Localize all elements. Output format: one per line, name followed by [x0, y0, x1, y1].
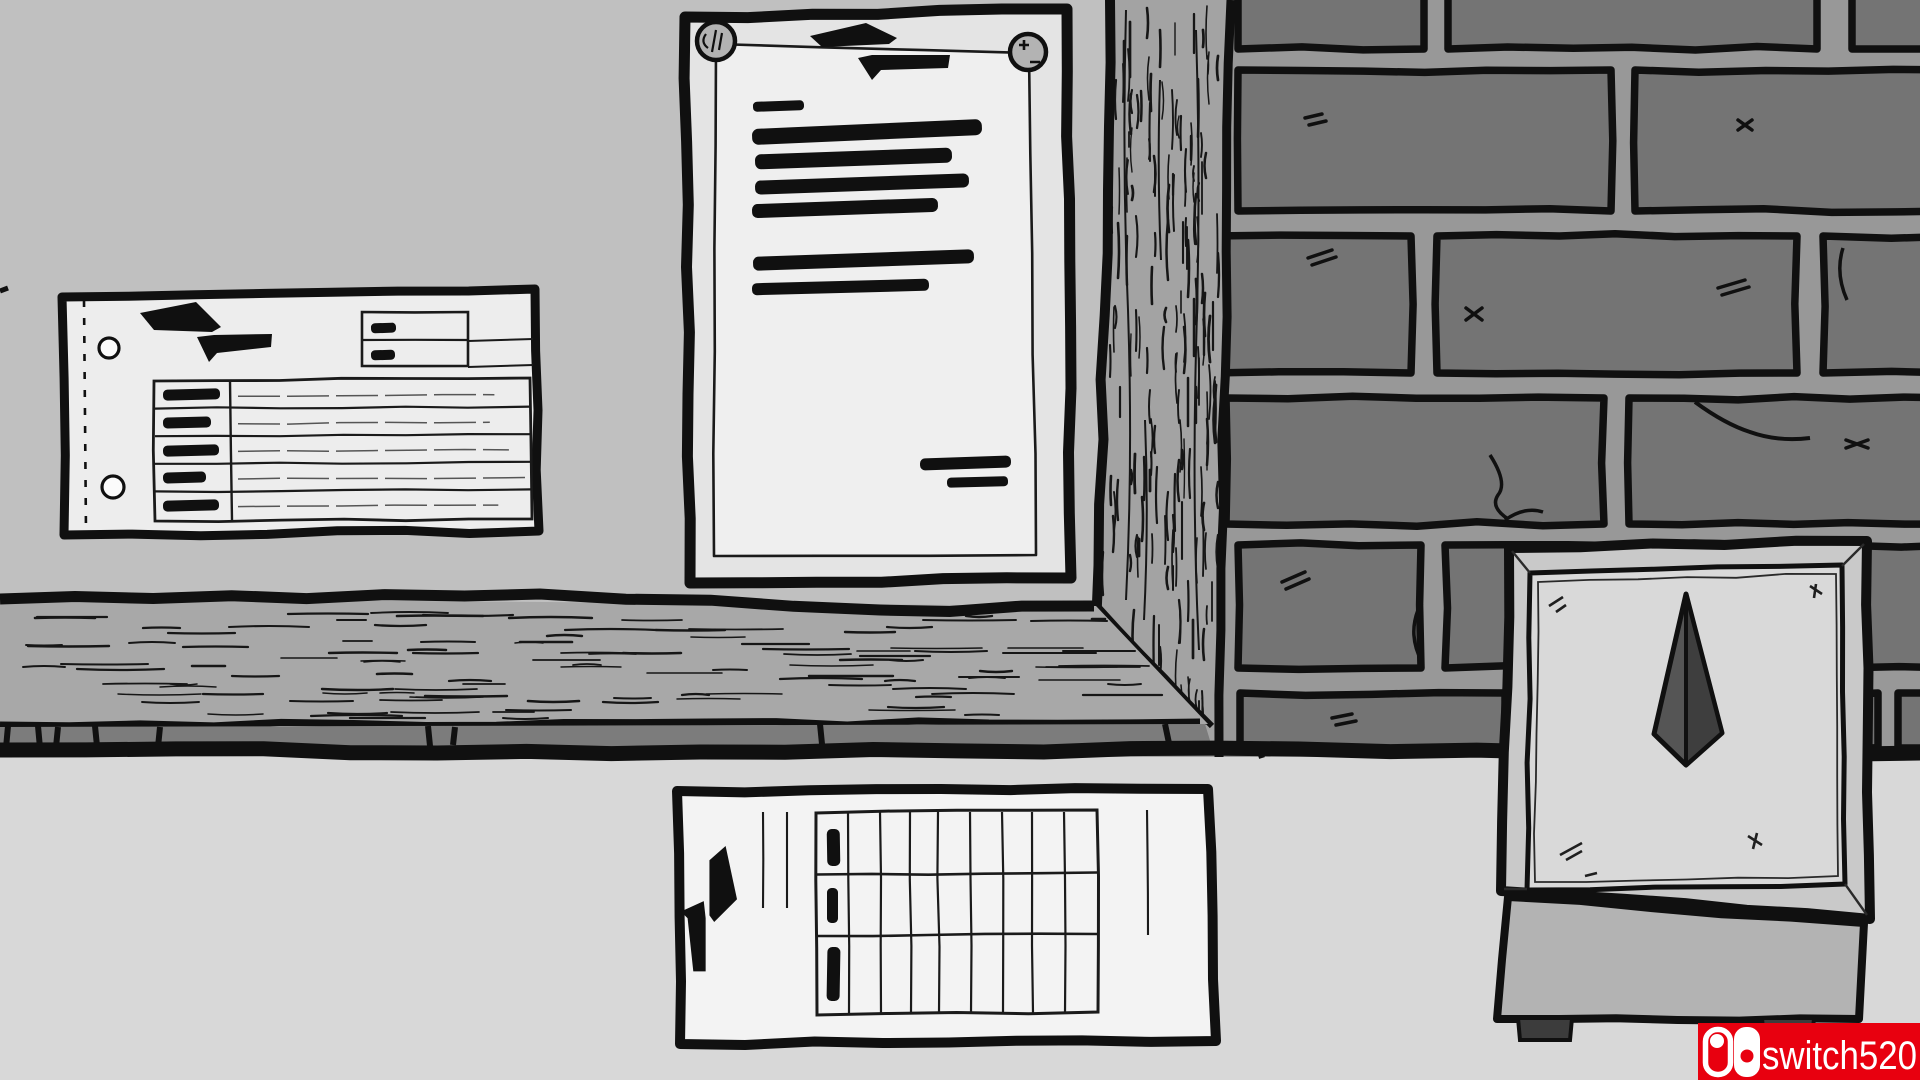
- svg-text:switch520: switch520: [1762, 1034, 1917, 1078]
